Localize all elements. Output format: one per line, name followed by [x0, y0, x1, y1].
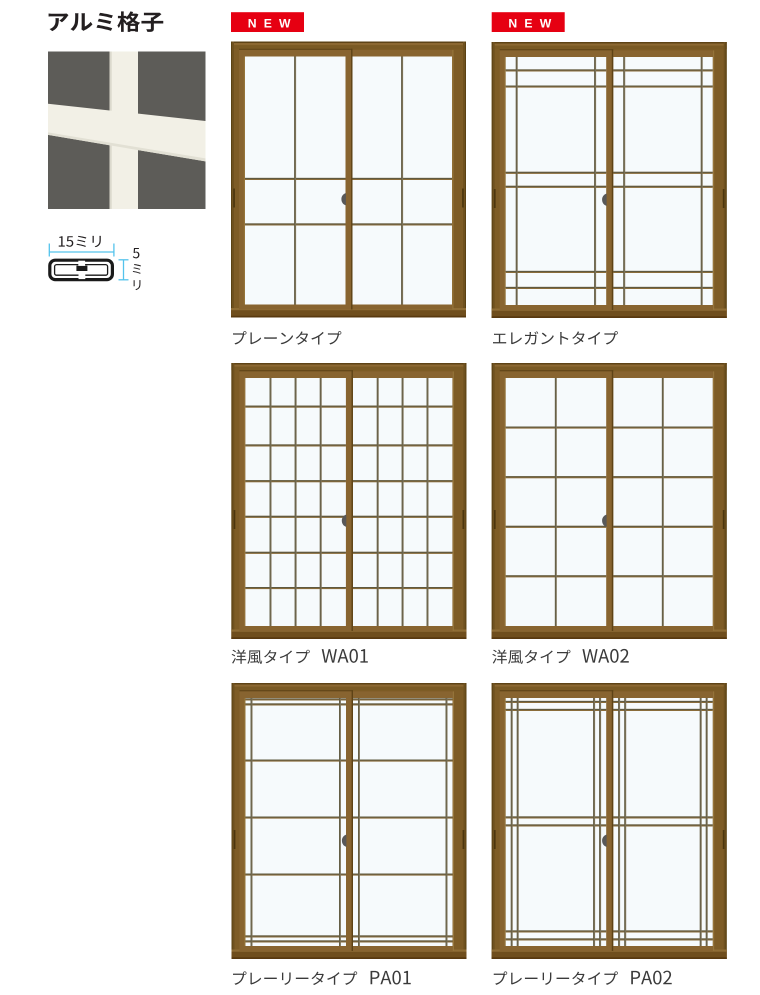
- svg-text:NEW: NEW: [248, 16, 298, 30]
- svg-text:NEW: NEW: [508, 16, 558, 30]
